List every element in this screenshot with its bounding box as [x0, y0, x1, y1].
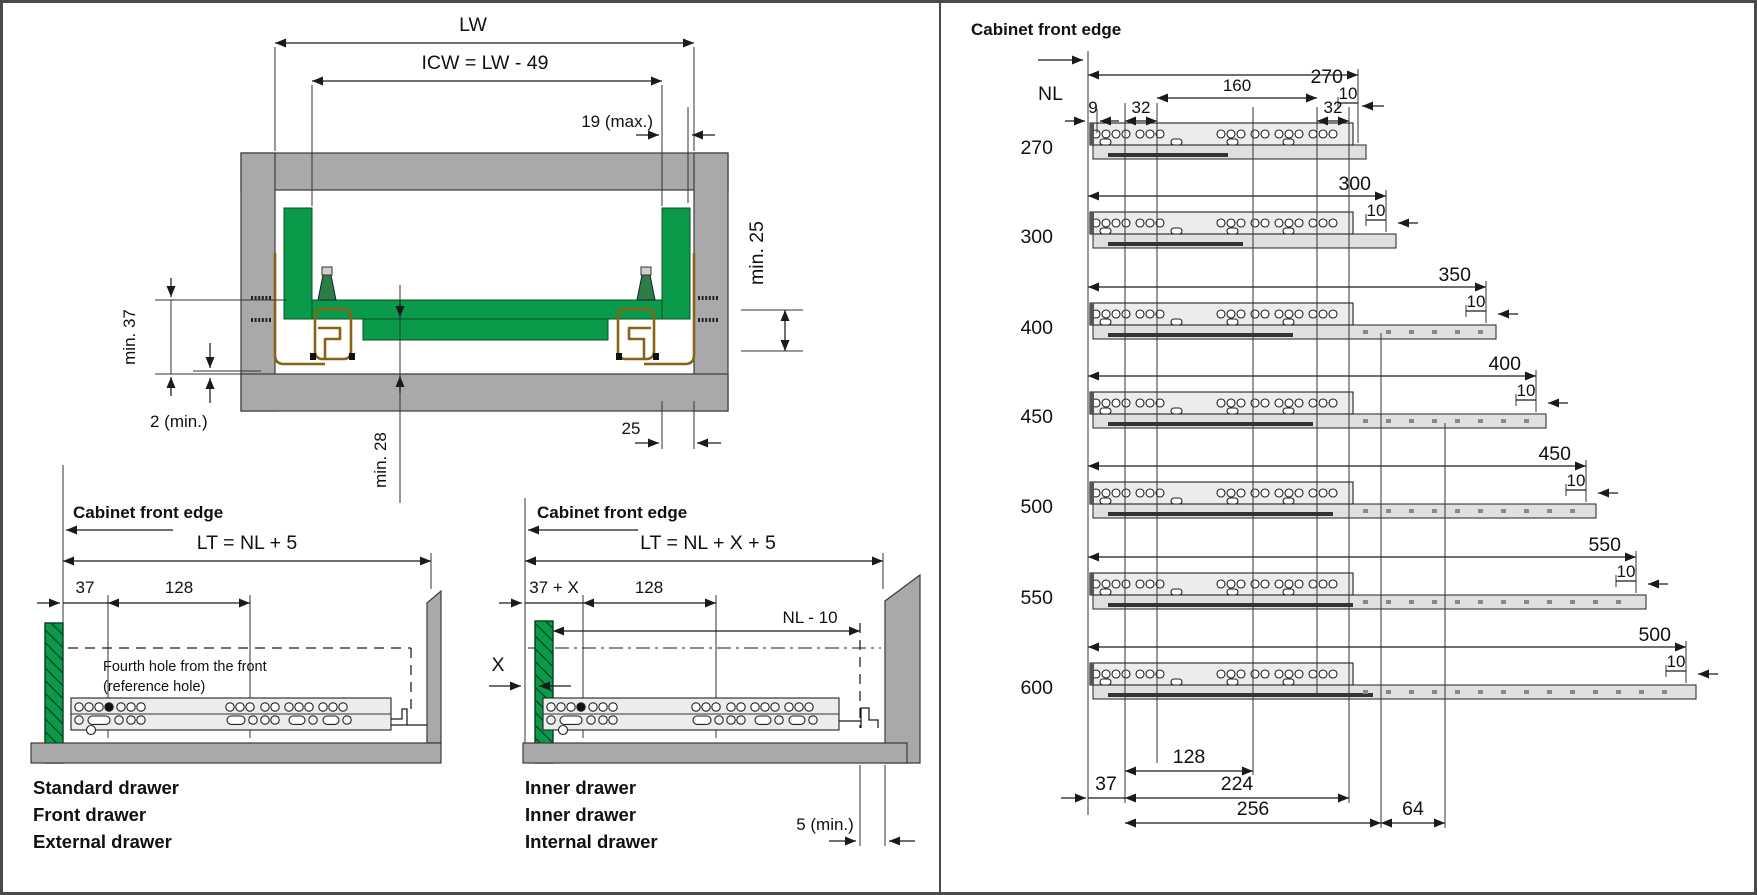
inner-back-wall: [885, 575, 920, 763]
dim-5min: 5 (min.): [796, 765, 915, 846]
right-front-edge-label: Cabinet front edge: [971, 20, 1121, 39]
d37-standard-label: 37: [76, 578, 95, 597]
dim-128-bottom: 128: [1125, 746, 1253, 771]
dim-x: X: [489, 654, 571, 686]
d37x-label: 37 + X: [529, 578, 579, 597]
locking-pin-left: [318, 267, 336, 300]
row4-nl: 450: [1020, 406, 1053, 428]
d128-inner-label: 128: [635, 578, 663, 597]
min25-label: min. 25: [746, 221, 768, 285]
row2-nl: 300: [1020, 226, 1053, 248]
row1-nl: 270: [1020, 137, 1053, 159]
d256-bottom-label: 256: [1237, 798, 1270, 820]
lt-inner-label: LT = NL + X + 5: [640, 532, 776, 554]
min2-label: 2 (min.): [150, 412, 208, 431]
row6-end-dim: 550: [1588, 534, 1621, 556]
cross-section-diagram: LW ICW = LW - 49 19 (max.) min. 37: [120, 14, 803, 503]
min28-label: min. 28: [371, 432, 390, 488]
d128-standard-label: 128: [165, 578, 193, 597]
lt-standard-label: LT = NL + 5: [197, 532, 298, 554]
row7-nl: 600: [1020, 677, 1053, 699]
standard-front-edge-label: Cabinet front edge: [73, 503, 223, 522]
dim-lt-standard: LT = NL + 5: [63, 532, 431, 589]
inner-front-edge-label: Cabinet front edge: [537, 503, 687, 522]
reference-hole-note-line2: (reference hole): [103, 679, 205, 695]
d37-bottom-label: 37: [1095, 773, 1117, 795]
dim-min25: min. 25: [741, 221, 803, 351]
slide-row-2: 300 10 300: [1020, 173, 1418, 248]
d32a-label: 32: [1132, 98, 1151, 117]
icw-label: ICW = LW - 49: [422, 52, 549, 74]
d64-bottom-label: 64: [1402, 798, 1424, 820]
row3-nl: 400: [1020, 317, 1053, 339]
row5-nl: 500: [1020, 496, 1053, 518]
slide-row-4: 400 10 450: [1020, 353, 1568, 428]
lw-label: LW: [459, 14, 487, 36]
standard-drawer-diagram: Cabinet front edge LT = NL + 5 37 128 Fo…: [31, 465, 441, 852]
reference-hole-note-line1: Fourth hole from the front: [103, 659, 267, 675]
nl10-label: NL - 10: [782, 608, 837, 627]
nl-header: NL: [1038, 83, 1063, 105]
inner-cabinet-bottom: [523, 743, 907, 763]
slide-row-5: 450 10 500: [1020, 443, 1618, 518]
inner-caption-2: Inner drawer: [525, 804, 636, 825]
standard-caption-3: External drawer: [33, 831, 172, 852]
slide-row-6: 550 10 550: [1020, 534, 1668, 609]
max19-label: 19 (max.): [581, 112, 653, 131]
dim-224-bottom: 224: [1125, 773, 1349, 798]
row4-offset-dim: 10: [1517, 381, 1536, 400]
d224-bottom-label: 224: [1221, 773, 1254, 795]
dim-256-bottom: 256: [1125, 798, 1381, 823]
inner-captions: Inner drawer Inner drawer Internal drawe…: [525, 777, 658, 852]
dim-64-bottom: 64: [1381, 798, 1445, 823]
standard-front-panel: [45, 623, 63, 763]
hole-column-lines: [1088, 51, 1445, 828]
dim-160: 160: [1157, 76, 1317, 98]
dim-37-bottom: 37: [1061, 773, 1125, 798]
row6-nl: 550: [1020, 587, 1053, 609]
top-dimensions: 160 9 32 32: [1065, 76, 1349, 121]
dim-9: 9: [1065, 98, 1119, 121]
technical-drawing-page: LW ICW = LW - 49 19 (max.) min. 37: [0, 0, 1757, 895]
inner-front-edge: Cabinet front edge: [528, 503, 687, 530]
d25-label: 25: [622, 419, 641, 438]
standard-cabinet-bottom: [31, 743, 441, 763]
min5-label: 5 (min.): [796, 815, 854, 834]
row2-end-dim: 300: [1338, 173, 1371, 195]
standard-captions: Standard drawer Front drawer External dr…: [33, 777, 179, 852]
standard-caption-1: Standard drawer: [33, 777, 179, 798]
inner-rail: [543, 698, 878, 735]
slide-row-3: 350 10 400: [1020, 264, 1518, 339]
d9-label: 9: [1088, 98, 1097, 117]
cabinet-body: [241, 153, 728, 411]
standard-rail: [71, 698, 427, 735]
d160-label: 160: [1223, 76, 1251, 95]
row4-end-dim: 400: [1488, 353, 1521, 375]
standard-back-panel: [427, 591, 441, 743]
row5-offset-dim: 10: [1567, 471, 1586, 490]
row6-offset-dim: 10: [1617, 562, 1636, 581]
d128-bottom-label: 128: [1173, 746, 1206, 768]
locking-pin-right: [637, 267, 655, 300]
d32b-label: 32: [1324, 98, 1343, 117]
inner-drawer-diagram: Cabinet front edge LT = NL + X + 5 37 + …: [489, 498, 920, 852]
inner-caption-1: Inner drawer: [525, 777, 636, 798]
row5-end-dim: 450: [1538, 443, 1571, 465]
x-label: X: [491, 654, 504, 676]
standard-caption-2: Front drawer: [33, 804, 146, 825]
drawer-sides: [284, 208, 690, 340]
right-panel: Cabinet front edge NL 270 10 270 300: [943, 3, 1757, 895]
row7-offset-dim: 10: [1667, 652, 1686, 671]
inner-caption-3: Internal drawer: [525, 831, 658, 852]
standard-front-edge: Cabinet front edge: [66, 503, 223, 530]
dim-32a: 32: [1125, 98, 1157, 121]
min37-label: min. 37: [120, 309, 139, 365]
inner-front-panel: [535, 621, 553, 763]
row7-end-dim: 500: [1638, 624, 1671, 646]
row3-offset-dim: 10: [1467, 292, 1486, 311]
left-panel: LW ICW = LW - 49 19 (max.) min. 37: [3, 3, 943, 895]
row2-offset-dim: 10: [1367, 201, 1386, 220]
row3-end-dim: 350: [1438, 264, 1471, 286]
